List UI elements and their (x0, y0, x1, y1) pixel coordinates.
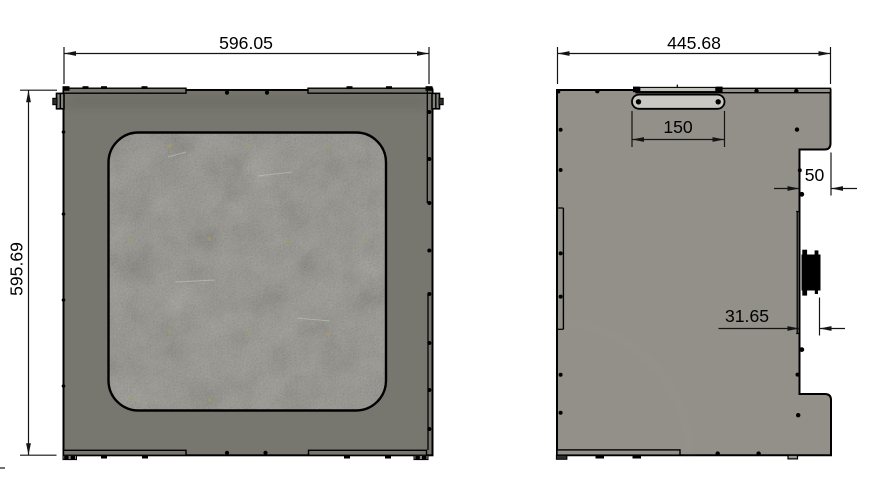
svg-text:31.65: 31.65 (725, 306, 769, 326)
svg-text:150: 150 (663, 117, 693, 137)
svg-text:595.69: 595.69 (7, 242, 27, 296)
svg-text:445.68: 445.68 (667, 33, 721, 53)
svg-text:596.05: 596.05 (219, 33, 273, 53)
svg-text:50: 50 (805, 165, 825, 185)
